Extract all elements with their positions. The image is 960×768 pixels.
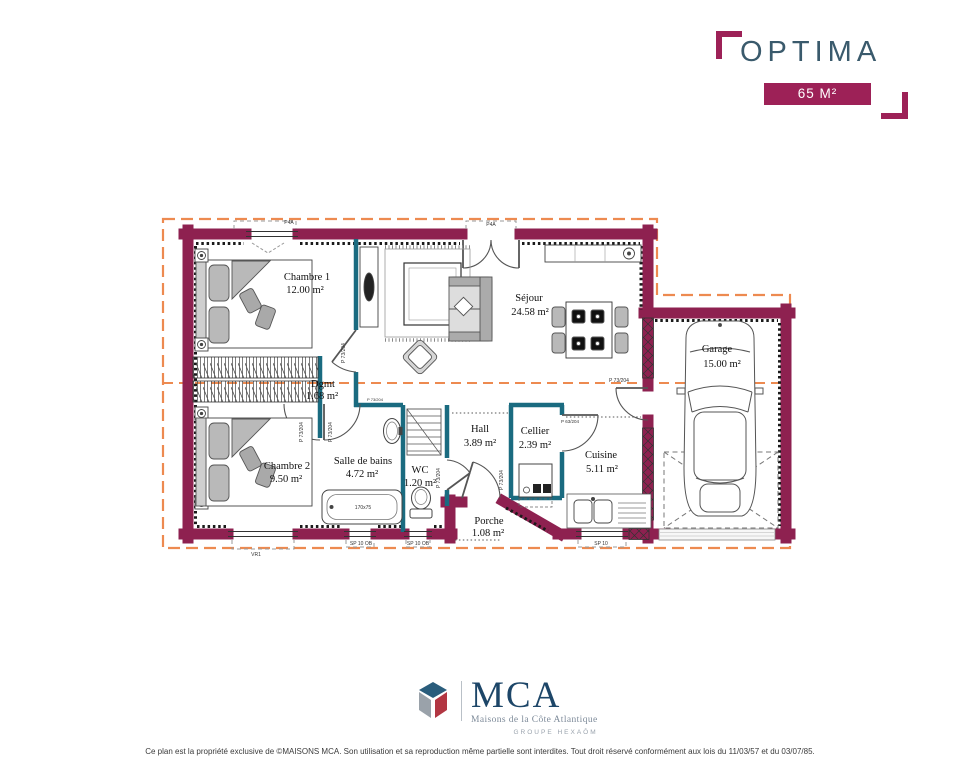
bathtub-size: 170x75 bbox=[355, 505, 372, 511]
dining-set bbox=[552, 302, 628, 358]
door-code: P 63/204 bbox=[561, 419, 579, 424]
corner-bracket-icon bbox=[716, 31, 742, 59]
room-label: WC bbox=[412, 465, 429, 476]
model-title: OPTIMA bbox=[740, 36, 881, 69]
door-code: P 73/204 bbox=[499, 470, 505, 490]
garage-slab bbox=[659, 529, 775, 540]
room-area: 3.89 m² bbox=[464, 438, 496, 449]
room-area: 5.11 m² bbox=[586, 464, 618, 475]
room-area: 2.39 m² bbox=[519, 440, 551, 451]
mca-logo: MCA Maisons de la Côte Atlantique GROUPE… bbox=[412, 679, 598, 736]
tv-sideboard bbox=[545, 245, 641, 262]
room-label: Séjour bbox=[515, 293, 543, 304]
room-area: 1.08 m² bbox=[472, 528, 504, 539]
logo-acronym: MCA bbox=[471, 679, 598, 713]
room-label: Dgmt bbox=[311, 379, 335, 390]
wardrobe bbox=[360, 247, 378, 327]
door-code: P 73/204 bbox=[367, 397, 384, 402]
shutter-code: VR1 bbox=[251, 552, 261, 558]
sofa bbox=[449, 277, 492, 341]
loft-ladder bbox=[407, 409, 441, 455]
kitchen-counter bbox=[567, 494, 651, 528]
armchair bbox=[402, 339, 439, 376]
room-area: 15.00 m² bbox=[703, 359, 741, 370]
toilet bbox=[410, 487, 432, 518]
door-code: P 73/204 bbox=[299, 422, 305, 442]
room-label: Hall bbox=[471, 424, 489, 435]
room-area: 4.72 m² bbox=[346, 469, 378, 480]
room-label: Chambre 1 bbox=[284, 272, 330, 283]
room-area: 12.00 m² bbox=[286, 285, 324, 296]
mca-cube-icon bbox=[412, 679, 454, 721]
room-area: 9.50 m² bbox=[270, 474, 302, 485]
door-code: P 73/204 bbox=[328, 422, 334, 442]
room-label: Garage bbox=[702, 344, 733, 355]
logo-group: GROUPE HEXAÔM bbox=[471, 729, 598, 736]
sill-code: SP 10 OB bbox=[407, 541, 430, 547]
room-label: Salle de bains bbox=[334, 456, 392, 467]
door-code: P 73/204 bbox=[341, 343, 347, 363]
room-label: Porche bbox=[474, 516, 503, 527]
window-code: P4A bbox=[486, 222, 496, 228]
page: OPTIMA 65 M² bbox=[0, 0, 960, 768]
sill-code: SP 10 OB bbox=[350, 541, 373, 547]
room-area: 1.20 m² bbox=[404, 478, 436, 489]
window-code: P4A bbox=[284, 220, 294, 226]
logo-divider bbox=[461, 681, 462, 721]
area-badge: 65 M² bbox=[764, 83, 871, 105]
room-label: Cellier bbox=[521, 426, 550, 437]
room-label: Chambre 2 bbox=[264, 461, 310, 472]
corner-bracket-icon bbox=[881, 92, 908, 119]
room-area: 1.68 m² bbox=[306, 391, 338, 402]
closet bbox=[193, 357, 318, 402]
door-code: P 73/204 bbox=[609, 378, 629, 384]
washing-machine bbox=[519, 464, 552, 507]
logo-name: Maisons de la Côte Atlantique bbox=[471, 715, 598, 725]
washbasin bbox=[384, 419, 403, 444]
room-label: Cuisine bbox=[585, 450, 617, 461]
sill-code: SP 10 bbox=[594, 541, 608, 547]
door-code: P 73/204 bbox=[436, 468, 442, 488]
room-area: 24.58 m² bbox=[511, 307, 549, 318]
floor-plan: Chambre 1 12.00 m² Séjour 24.58 m² Garag… bbox=[158, 210, 810, 558]
copyright-text: Ce plan est la propriété exclusive de ©M… bbox=[0, 747, 960, 756]
